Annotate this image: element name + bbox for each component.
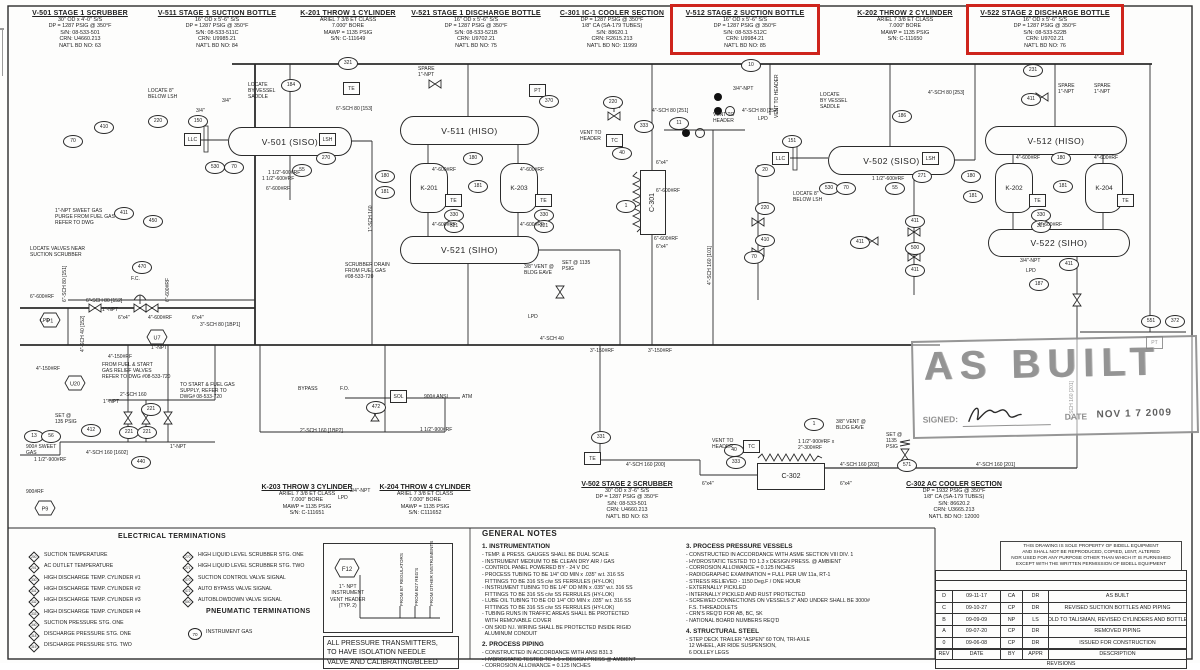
pipe-label: F.O. [340,386,349,392]
equipment-header-bottom: V-502 STAGE 2 SCRUBBER30" OD x 3'-6" S/S… [568,481,686,520]
stamp-signed-label: SIGNED: [923,414,959,425]
instrument-bubble: 186 [892,110,912,123]
pipe-label: 4"-SCH 160 [200] [626,462,665,468]
pipe-label: LPD [528,314,538,320]
pipe-label: 4"-SCH 40 [540,336,564,342]
instrument-box-llc: LLC [184,133,201,146]
stamp-text: AS BUILT [923,340,1161,390]
pipe-label: 3"-150#RF [590,348,614,354]
rev-cell: REVISIONS [935,659,1187,669]
equipment-header-line: NAT'L BD NO: 75 [403,43,549,49]
cooler-label: C-302 [781,473,800,480]
instrument-bubble: 410 [94,121,114,134]
termination-tag: 330 [31,578,36,582]
scan-artifact [0,28,4,30]
pipe-label: 4"-600#RF [432,222,456,228]
note-line: - INSTRUMENT TUBING TO BE 1/4" OD MIN x … [482,585,682,592]
note-line: - LUBE OIL TUBING TO BE OD 1/4" OD MIN x… [482,598,682,605]
note-line: - TUBING RUNS IN TRAFFIC AREAS SHALL BE … [482,611,682,618]
termination-label: HIGH DISCHARGE TEMP. CYLINDER #3 [44,597,141,603]
pipe-label: 900#RF [26,489,44,495]
termination-tag: 333 [31,611,36,615]
pipe-label: SPARE 1"-NPT [1094,83,1111,95]
instrument-bubble: 472 [366,401,386,414]
instrument-box-sol: SOL [390,390,407,403]
svg-text:U7: U7 [153,336,160,342]
instrument-bubble: 411 [905,264,925,277]
instrument-vent-header-box: 1"- NPT INSTRUMENT VENT HEADER (TYP. 2) … [323,543,453,633]
note-line: - INTERNALLY PICKLED AND RUST PROTECTED [686,592,934,599]
pipe-label: LPD [758,116,768,122]
termination-tag: 319 [31,645,36,649]
pipe-label: 1"-NPT [151,345,167,351]
pipe-label: SPARE 1"-NPT [1058,83,1075,95]
transmitter-note-box: ALL PRESSURE TRANSMITTERS, TO HAVE ISOLA… [323,636,459,669]
pipe-label: 3/4"-NPT [1020,258,1040,264]
pipe-label: 4"-SCH 80 [251] [652,108,688,114]
instrument-bubble: 180 [375,170,395,183]
pipe-label: 4"-SCH 80 [252] [742,108,778,114]
pipe-label: VENT TO HEADER [712,438,733,450]
termination-tag: 200 [31,555,36,559]
pipe-label: 6"-600#RF [654,236,678,242]
equipment-header-line: NAT'L BD NO: 76 [972,43,1118,49]
vent-rotated-label: FROM OTHER INSTRUMENTS [429,541,434,606]
pipe-label: 6"-600#RF [165,278,171,302]
instrument-bubble: 571 [897,459,917,472]
note-line: - HYDROSTATIC TESTED TO 1.3 x DESIGN PRE… [686,559,934,566]
pipe-label: 4"-SCH 160 [1602] [86,450,128,456]
pipe-label: 4"-600#RF [432,167,456,173]
note-heading: 4. STRUCTURAL STEEL [686,628,934,636]
instrument-bubble: 333 [634,120,654,133]
instrument-bubble: 56 [41,430,61,443]
note-heading: 3. PROCESS PRESSURE VESSELS [686,543,934,551]
pipe-label: F.C. [131,276,140,282]
equipment-header: V-512 STAGE 2 SUCTION BOTTLE16" OD x 5'-… [676,10,814,49]
termination-label: HIGH DISCHARGE TEMP. CYLINDER #1 [44,575,141,581]
instrument-box-lsh: LSH [922,152,939,165]
pipe-label: LPD [338,495,348,501]
pipe-label: 4"-600#RF [1016,155,1040,161]
pipe-label: 6"x4" [840,481,852,487]
instrument-box-te: TE [445,194,462,207]
instrument-bubble: 551 [1141,315,1161,328]
instrument-box-llc: LLC [772,152,789,165]
pipe-label: 6"x4" [656,160,668,166]
pipe-label: 1"-NPT [102,307,118,313]
pipe-label: BYPASS [298,386,318,392]
pipe-label: SET @ 135 PSIG [55,413,77,425]
note-line: - CORROSION ALLOWANCE = 0.125 INCHES [686,565,934,572]
pipe-label: 3/4" [196,108,205,114]
equipment-header-line: S/N: C-111650 [850,36,960,42]
instrument-bubble: 411 [114,207,134,220]
pipe-label: 6"-SCH 80 [151] [62,266,68,302]
instrument-box-lsh: LSH [319,133,336,146]
pipe-label: 6"-SCH 80 [153] [336,106,372,112]
pipe-label: 6"-SCH 80 [152] [86,298,122,304]
instrument-bubble: 181 [963,190,983,203]
general-notes-title: GENERAL NOTES [482,529,557,538]
pipe-label: 1 1/2"-900#RF x 2"-300#RF [798,439,834,451]
pipe-label: 1 1/2"-600#RF [268,170,300,176]
equipment-header-title: K-202 THROW 2 CYLINDER [850,10,960,17]
pipe-label: 1"-SCH 160 [368,205,374,232]
electrical-terminations-title: ELECTRICAL TERMINATIONS [118,533,226,540]
instrument-bubble: 231 [1023,64,1043,77]
instrument-box-tc: TC [743,440,760,453]
instrument-bubble: 412 [81,424,101,437]
termination-label: HIGH LIQUID LEVEL SCRUBBER STG. ONE [198,552,304,558]
note-line: FITTINGS TO BE 316 SS c/w SS FERRULES (H… [482,605,682,612]
pipe-label: 3/4"-NPT [733,86,753,92]
stamp-date-label: DATE [1065,411,1088,421]
note-line: - ON SKID N.I. WIRING SHALL BE PROTECTED… [482,625,682,632]
note-line: - CRN'S REQ'D FOR AB, BC, SK [686,611,934,618]
equipment-header-title: V-512 STAGE 2 SUCTION BOTTLE [676,10,814,17]
pipe-label: 4"-SCH 160 [202] [840,462,879,468]
instrument-bubble: 411 [905,215,925,228]
pipe-label: 6"x4" [192,315,204,321]
instrument-bubble: 180 [1051,152,1071,165]
as-built-stamp: AS BUILT SIGNED: DATE NOV 1 7 2009 [911,335,1199,439]
instrument-box-te: TE [535,194,552,207]
pipe-label: 1"-NPT [170,444,186,450]
cylinder-k-202: K-202 [995,163,1033,213]
pipe-label: 6"-600#RF [30,294,54,300]
equipment-header: C-301 IC-1 COOLER SECTIONDP = 1287 PSIG … [552,10,672,49]
instrument-bubble: 70 [744,251,764,264]
pipe-label: SET @ 1135 PSIG [562,260,590,272]
termination-tag: 472 [185,589,190,593]
termination-label: HIGH DISCHARGE TEMP. CYLINDER #2 [44,586,141,592]
note-line: - RADIOGRAPHIC EXAMINATION = FULL PER UW… [686,572,934,579]
pipe-label: 4"-150#RF [108,354,132,360]
equipment-header-line: NAT'L BD NO: 85 [676,43,814,49]
termination-tag: 201 [31,566,36,570]
instrument-bubble: 270 [316,152,336,165]
pipe-label: 2"-SCH 160 [1BP2] [300,428,343,434]
termination-tag: 318 [31,634,36,638]
note-line: - SCREWED CONNECTIONS ON VESSELS 2" AND … [686,598,934,605]
equipment-header-title: C-301 IC-1 COOLER SECTION [552,10,672,17]
equipment-header-line: S/N: C-111649 [294,36,402,42]
note-line: - INSTRUMENT MEDIUM TO BE CLEAN DRY AIR … [482,559,682,566]
equipment-header-title: V-521 STAGE 1 DISCHARGE BOTTLE [403,10,549,17]
equipment-header-line: NAT'L BD NO: 11999 [552,43,672,49]
instrument-bubble: 70 [63,135,83,148]
note-line: - STEP DECK TRAILER "ASPEN" 60 TON, TRI-… [686,637,934,644]
instrument-bubble: 221 [141,403,161,416]
note-line: - CORROSION ALLOWANCE = 0.125 INCHES [482,663,682,670]
pipe-label: 3/8" VENT @ BLDG EAVE [524,264,554,276]
pipe-label: 3/4" [222,98,231,104]
pneumatic-tag: 70 [188,628,202,640]
pipe-label: 6"x4" [656,244,668,250]
pipe-label: 1 1/2"-900#RF [420,427,452,433]
equipment-header-title: V-522 STAGE 2 DISCHARGE BOTTLE [972,10,1118,17]
note-heading: 1. INSTRUMENTATION [482,543,682,551]
pipe-label: 3"-150#RF [648,348,672,354]
pipe-label: 4"-600#RF [520,167,544,173]
equipment-header-title: K-203 THROW 3 CYLINDER [252,484,362,491]
equipment-header: K-202 THROW 2 CYLINDERARIEL 7 3/8 ET CLA… [850,10,960,43]
instrument-bubble: 220 [755,202,775,215]
note-line: 6 DOLLEY LEGS [686,650,934,657]
note-line: FITTINGS TO BE 316 SS c/w SS FERRULES (H… [482,579,682,586]
termination-tag: 332 [31,600,36,604]
cooler-c-302: C-302 [757,463,825,490]
termination-tag: 340 [31,623,36,627]
vent-rotated-label: FROM B27 REG'S [414,568,419,606]
pipe-label: VENT TO HEADER [774,74,780,118]
pipe-label: 1 1/2"-600#RF [872,176,904,182]
instrument-bubble: 181 [375,186,395,199]
pipe-label: 3"-SCH 80 [1BP1] [200,322,240,328]
equipment-header-line: NAT'L BD NO: 84 [142,43,292,49]
equipment-header-bottom: K-204 THROW 4 CYLINDERARIEL 7 3/8 ET CLA… [370,484,480,517]
pipe-label: LOCATE VALVES NEAR SUCTION SCRUBBER [30,246,85,258]
note-line: - EXTERNALLY PICKLED [686,585,934,592]
instrument-bubble: 11 [669,117,689,130]
instrument-bubble: 331 [591,431,611,444]
cooler-label: C-301 [649,193,656,212]
termination-label: AUTOBLOWDOWN VALVE SIGNAL [198,597,282,603]
equipment-header-title: C-302 AC COOLER SECTION [893,481,1015,488]
instrument-bubble: 70 [224,161,244,174]
instrument-box-te: TE [584,452,601,465]
termination-tag: 470 [185,578,190,582]
pipe-label: SCRUBBER DRAIN FROM FUEL GAS #08-533-720 [345,262,390,280]
instrument-bubble: 440 [131,456,151,469]
termination-label: SUCTION CONTROL VALVE SIGNAL [198,575,286,581]
instrument-bubble: 181 [1053,180,1073,193]
pipe-label: VENT TO HEADER [713,112,734,124]
instrument-bubble: 372 [1165,315,1185,328]
equipment-header-bottom: C-302 AC COOLER SECTIONDP = 1932 PSIG @ … [893,481,1015,520]
equipment-header: V-511 STAGE 1 SUCTION BOTTLE16" OD x 5'-… [142,10,292,49]
pipe-label: 4"-600#RF [1038,222,1062,228]
utility-hex-u20: U20 [64,375,86,396]
pipe-label: 6"x4" [118,315,130,321]
termination-label: AC OUTLET TEMPERATURE [44,563,113,569]
termination-tag: 331 [31,589,36,593]
vent-header-text: 1"- NPT INSTRUMENT VENT HEADER (TYP. 2) [330,584,365,609]
pipe-label: 4"-SCH 160 [201] [976,462,1015,468]
pipe-label: 4"-SCH 80 [253] [928,90,964,96]
equipment-header-line: NAT'L BD NO: 12000 [893,514,1015,520]
pipe-label: LPD [40,318,50,324]
pipe-label: 2"-SCH 160 [120,392,147,398]
termination-label: AUTO BYPASS VALVE SIGNAL [198,586,272,592]
stamp-date-value: NOV 1 7 2009 [1096,407,1172,420]
termination-label: HIGH LIQUID LEVEL SCRUBBER STG. TWO [198,563,304,569]
instrument-bubble: 187 [1029,278,1049,291]
instrument-box-tc: TC [606,134,623,147]
pipe-label: 1 1/2"-600#RF [262,176,294,182]
pipe-label: 6"x4" [702,481,714,487]
pipe-label: 1 1/2"-900#RF [34,457,66,463]
instrument-box-te: TE [1117,194,1134,207]
equipment-header-title: V-511 STAGE 1 SUCTION BOTTLE [142,10,292,17]
pipe-label: 1"-NPT SWEET GAS PURGE FROM FUEL GAS REF… [55,208,115,226]
pid-drawing-sheet: { "sheet": { "stamp": { "text": "AS BUIL… [0,0,1200,663]
pipe-label: 1"-NPT [103,399,119,405]
instrument-bubble: 1 [616,200,636,213]
equipment-header: V-521 STAGE 1 DISCHARGE BOTTLE16" OD x 5… [403,10,549,49]
instrument-bubble: 410 [755,234,775,247]
equipment-header-line: NAT'L BD NO: 63 [568,514,686,520]
instrument-bubble: 220 [603,96,623,109]
pipe-label: LPD [1026,268,1036,274]
pipe-label: 4"-SCH 160 [101] [707,246,713,285]
instrument-bubble: 321 [338,57,358,70]
pipe-label: ATM [462,394,472,400]
instrument-bubble: 150 [188,115,208,128]
general-notes-col2: 3. PROCESS PRESSURE VESSELS- CONSTRUCTED… [686,540,934,657]
pipe-label: LOCATE BY VESSEL SADDLE [820,92,847,110]
termination-tag: 271 [185,566,190,570]
pipe-label: LOCATE 8" BELOW LSH [793,191,822,203]
utility-hex-p9: P9 [34,500,56,521]
instrument-bubble: 500 [905,242,925,255]
pipe-label: SPARE 1"-NPT [418,66,435,78]
equipment-header: V-522 STAGE 2 DISCHARGE BOTTLE16" OD x 5… [972,10,1118,49]
instrument-bubble: 411 [1021,93,1041,106]
pneumatic-label: INSTRUMENT GAS [206,629,252,635]
svg-text:F12: F12 [342,567,353,573]
note-line: - HYDROSTATIC TESTED TO 1.5 x DESIGN PRE… [482,657,682,664]
note-line: - TEMP. & PRESS. GAUGES SHALL BE DUAL SC… [482,552,682,559]
termination-tag: 270 [185,555,190,559]
termination-label: DISCHARGE PRESSURE STG. TWO [44,642,132,648]
pipe-label: 3/4"-NPT [350,488,370,494]
instrument-bubble: 10 [741,59,761,72]
pipe-label: 4"-150#RF [36,366,60,372]
equipment-header-title: V-501 STAGE 1 SCRUBBER [20,10,140,17]
note-line: - CONSTRUCTED IN ACCORDANCE WITH ANSI B3… [482,650,682,657]
instrument-bubble: 530 [205,161,225,174]
equipment-header: V-501 STAGE 1 SCRUBBER30" OD x 4'-0" S/S… [20,10,140,49]
property-disclaimer: THIS DRAWING IS SOLE PROPERTY OF BIDELL … [1000,541,1182,571]
pipe-label: 6"-600#RF [266,186,290,192]
pipe-label: 900# ANSI [424,394,448,400]
vessel-v-511: V-511 (HISO) [400,116,539,145]
instrument-bubble: 221 [119,426,139,439]
instrument-bubble: 180 [463,152,483,165]
revision-table: D09-11-17CADRAS BUILTC09-10-27CPDRREVISE… [935,570,1186,663]
instrument-bubble: 470 [132,261,152,274]
instrument-bubble: 151 [782,135,802,148]
equipment-header-title: K-201 THROW 1 CYLINDER [294,10,402,17]
instrument-bubble: 220 [148,115,168,128]
termination-label: SUCTION TEMPERATURE [44,552,108,558]
cooler-c-301: C-301 [640,170,666,235]
note-line: FITTINGS TO BE 316 SS c/w SS FERRULES (H… [482,592,682,599]
signature-icon [964,401,1025,428]
pipe-label: 4"-SCH 40 [152] [80,316,86,352]
instrument-bubble: 180 [961,170,981,183]
instrument-bubble: 40 [612,147,632,160]
pipe-label: 4"-600#RF [1094,155,1118,161]
instrument-bubble: 181 [468,180,488,193]
equipment-header: K-201 THROW 1 CYLINDERARIEL 7 3/8 ET CLA… [294,10,402,43]
instrument-bubble: 411 [1059,258,1079,271]
vent-hex-tag: F12 [334,558,360,583]
pipe-label: 3/8" VENT @ BLDG EAVE [836,419,866,431]
instrument-bubble: 70 [836,182,856,195]
instrument-bubble: 370 [539,95,559,108]
note-line: F.S. THREADOLETS [686,605,934,612]
pipe-label: VENT TO HEADER [580,130,601,142]
general-notes-col1: 1. INSTRUMENTATION- TEMP. & PRESS. GAUGE… [482,540,682,670]
instrument-bubble: 20 [755,164,775,177]
note-line: - CONSTRUCTED IN ACCORDANCE WITH ASME SE… [686,552,934,559]
instrument-bubble: 333 [726,456,746,469]
pipe-label: LOCATE BY VESSEL SADDLE [248,82,275,100]
note-line: - STRESS RELIEVED - 1150 Deg.F / ONE HOU… [686,579,934,586]
equipment-header-line: S/N: C111652 [370,510,480,516]
instrument-box-te: TE [1029,194,1046,207]
equipment-header-title: V-502 STAGE 2 SCRUBBER [568,481,686,488]
instrument-bubble: 411 [850,236,870,249]
svg-text:P9: P9 [42,507,49,513]
instrument-bubble: 271 [912,170,932,183]
instrument-box-te: TE [343,82,360,95]
note-line: ALUMINUM CONDUIT [482,631,682,638]
note-line: - CONTROL PANEL POWERED BY - 24 V DC [482,565,682,572]
termination-label: SUCTION PRESSURE STG. ONE [44,620,124,626]
note-line: WITH REMOVABLE COVER [482,618,682,625]
instrument-bubble: 1 [804,418,824,431]
instrument-bubble: 221 [137,426,157,439]
equipment-header-line: NAT'L BD NO: 63 [20,43,140,49]
pipe-label: LOCATE 8" BELOW LSH [148,88,177,100]
note-line: 12 WHEEL, AIR RIDE SUSPENSION, [686,643,934,650]
note-heading: 2. PROCESS PIPING [482,641,682,649]
pipe-label: 4"-600#RF [148,315,172,321]
equipment-header-title: K-204 THROW 4 CYLINDER [370,484,480,491]
pipe-label: SET @ 1135 PSIG [886,432,902,450]
pipe-label: 900# SWEET GAS [26,444,56,456]
pipe-label: 6"-600#RF [656,188,680,194]
instrument-bubble: 450 [143,215,163,228]
pipe-label: 4"-600#RF [520,222,544,228]
note-line: - PROCESS TUBING TO BE 1/4" OD MIN x .03… [482,572,682,579]
termination-tag: 500 [185,600,190,604]
pipe-label: TO START & FUEL GAS SUPPLY, REFER TO DWG… [180,382,235,400]
equipment-header-line: S/N: C-111651 [252,510,362,516]
scan-artifact [2,28,3,76]
vent-rotated-label: FROM B7 REGULATORS [399,553,404,606]
note-line: - NATIONAL BOARD NUMBERS REQ'D [686,618,934,625]
svg-text:U20: U20 [70,382,80,388]
instrument-bubble: 55 [885,182,905,195]
vessel-v-512: V-512 (HISO) [985,126,1127,155]
termination-label: DISCHARGE PRESSURE STG. ONE [44,631,131,637]
termination-label: HIGH DISCHARGE TEMP. CYLINDER #4 [44,609,141,615]
pipe-label: FROM FUEL & START GAS RELIEF VALVES REFE… [102,362,170,380]
instrument-bubble: 184 [281,79,301,92]
pneumatic-terminations-title: PNEUMATIC TERMINATIONS [206,608,311,615]
vessel-v-522: V-522 (SIHO) [988,229,1130,257]
vessel-v-521: V-521 (SIHO) [400,236,539,264]
